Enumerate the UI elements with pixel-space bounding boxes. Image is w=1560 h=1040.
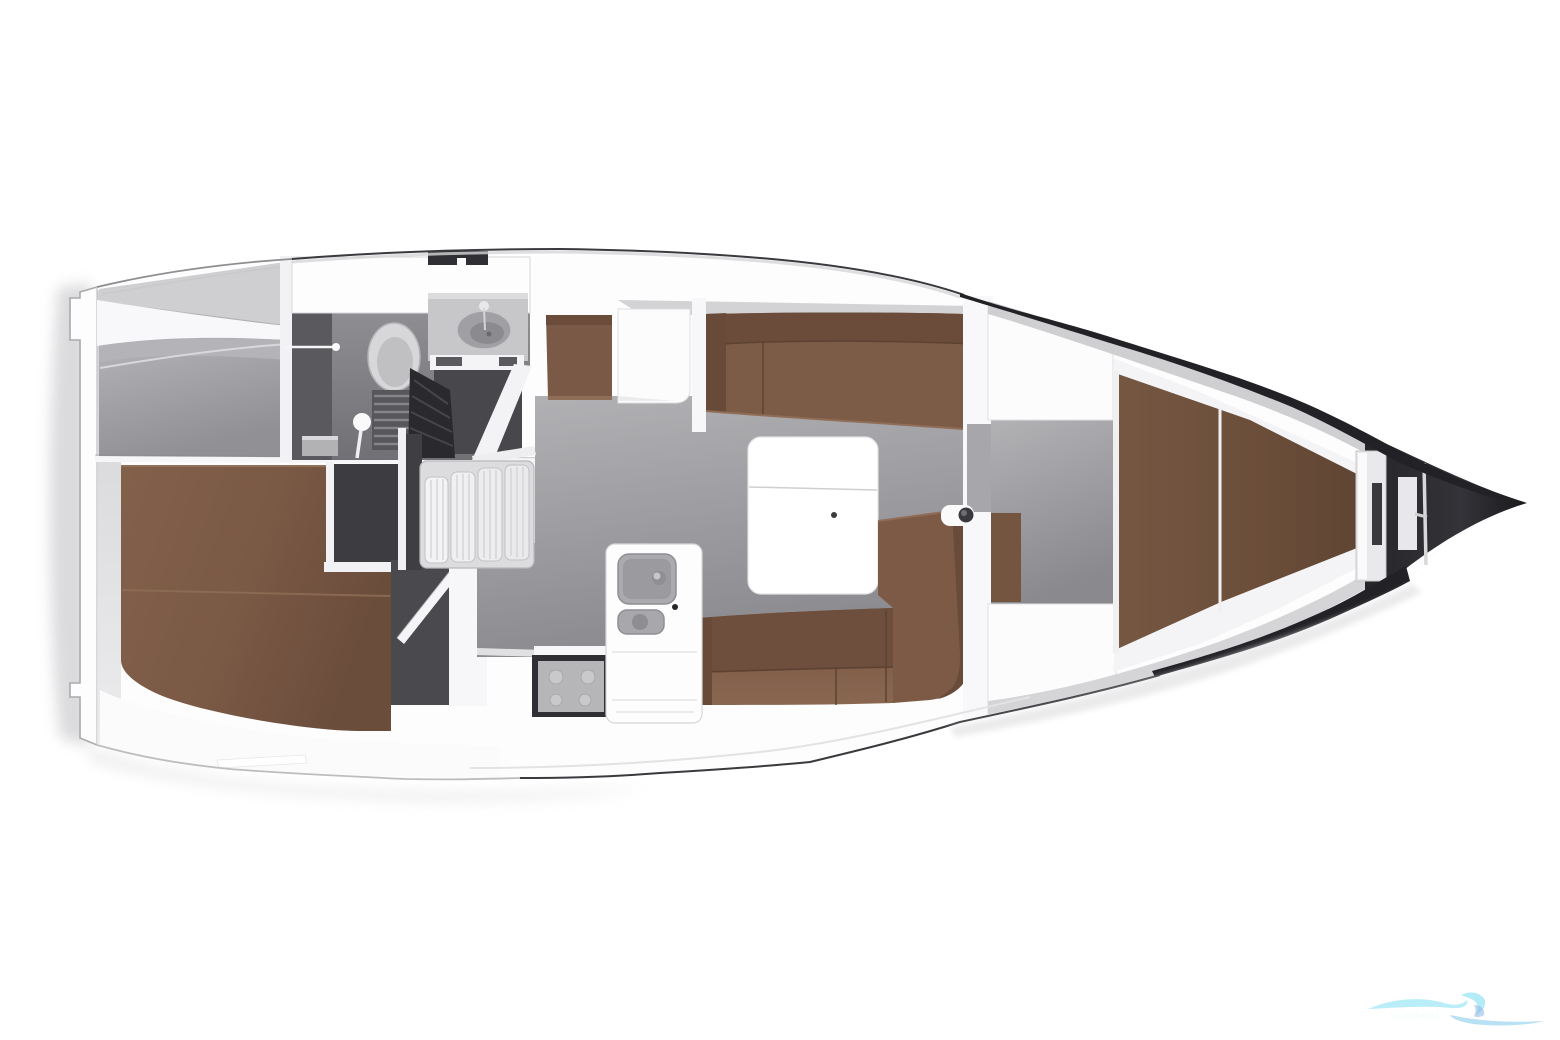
svg-text:scanboat: scanboat: [1390, 1008, 1439, 1022]
